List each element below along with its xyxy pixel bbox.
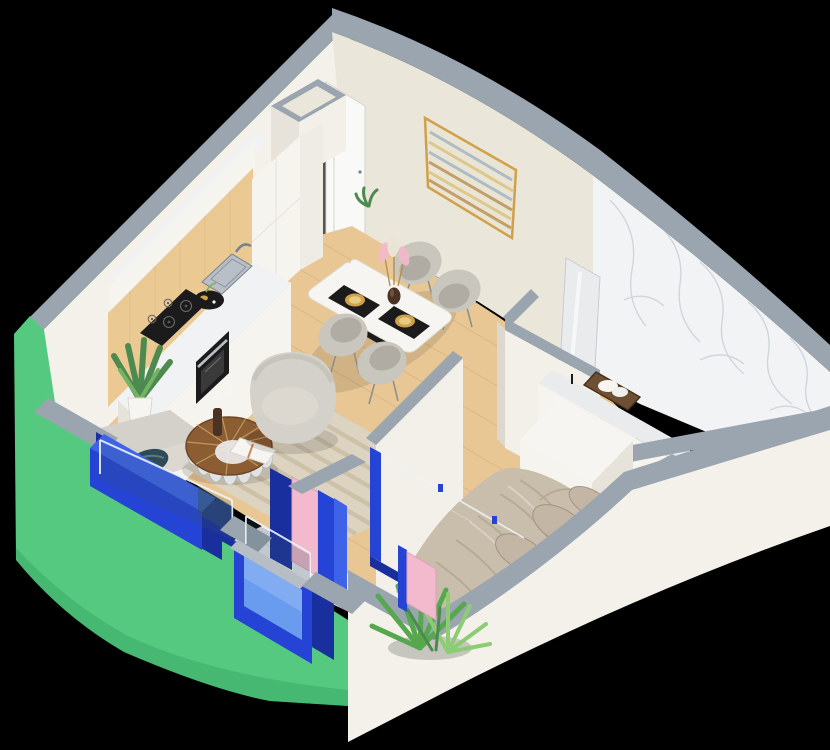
hall-wall-end: [497, 321, 505, 447]
glazing-post: [370, 447, 381, 562]
towel: [612, 387, 628, 397]
glazing-post: [398, 545, 407, 612]
floorplan-render: [0, 0, 830, 750]
glazing-post: [334, 498, 347, 592]
glass-clip: [492, 516, 497, 524]
decor-vase: [213, 408, 222, 436]
armchair: [246, 352, 338, 454]
door-handle: [358, 170, 361, 173]
glass-clip: [438, 484, 443, 492]
armchair-cushion: [262, 387, 318, 425]
apartment-isometric-scene: [0, 0, 830, 750]
tall-cabinet-side: [300, 123, 323, 270]
vase: [388, 288, 401, 305]
glazing-post: [318, 490, 334, 586]
